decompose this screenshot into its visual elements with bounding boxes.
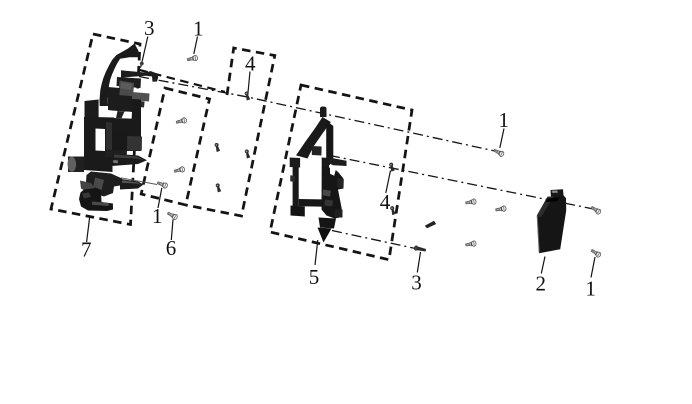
svg-text:4: 4 (380, 190, 391, 214)
svg-text:1: 1 (585, 277, 596, 301)
svg-text:4: 4 (245, 52, 256, 76)
svg-text:1: 1 (193, 17, 204, 41)
svg-text:5: 5 (309, 265, 320, 289)
svg-text:3: 3 (411, 271, 422, 295)
svg-text:1: 1 (499, 108, 510, 132)
svg-text:6: 6 (166, 236, 177, 260)
svg-text:2: 2 (536, 272, 547, 296)
svg-text:3: 3 (144, 16, 155, 40)
svg-text:1: 1 (152, 204, 163, 228)
svg-text:7: 7 (81, 238, 92, 262)
